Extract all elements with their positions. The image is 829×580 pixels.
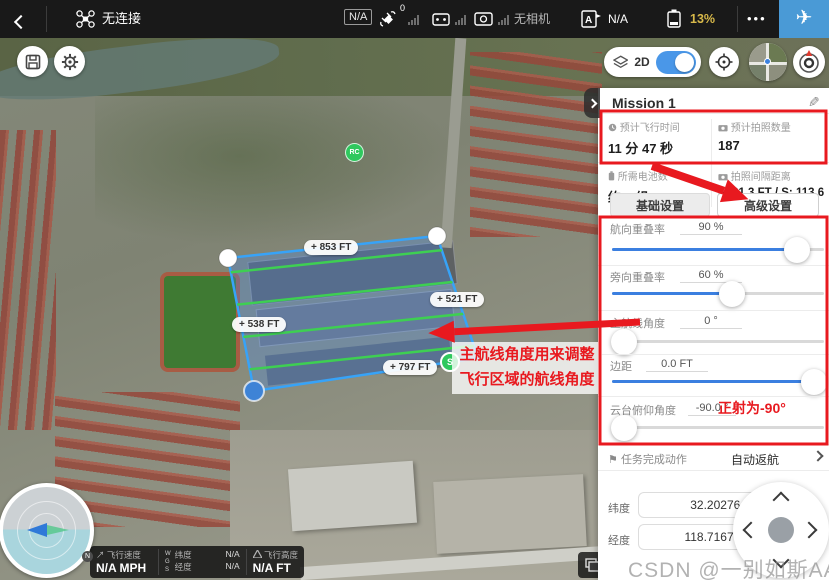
slider-value-margin[interactable]: 0.0 FT [646,358,708,372]
battery-small-icon [608,171,615,181]
edge-length-label: + 521 FT [430,292,484,307]
slider-gimbal-pitch[interactable] [612,426,824,429]
tele-lat-value: N/A [226,549,240,561]
slider-label-course-overlap: 航向重叠率 [610,221,665,237]
edit-mission-button[interactable]: ✎ [808,94,820,111]
map-building [288,461,417,532]
slider-label-margin: 边距 [610,358,632,374]
back-chevron-icon [14,15,28,29]
status-bar: 无连接 N/A 0 无相机 A N/A [0,0,829,38]
mission-settings-button[interactable] [54,46,85,77]
slider-thumb[interactable] [784,237,810,263]
aircraft-heading-icon [21,517,73,543]
save-mission-button[interactable] [17,46,48,77]
remote-controller-icon [432,11,450,26]
finish-action-chevron[interactable] [814,451,822,463]
slider-value-route-angle[interactable]: 0 ° [680,315,742,329]
tab-basic-settings[interactable]: 基础设置 [610,193,710,217]
annotation-route-angle-note: 主航线角度用来调整 飞行区域的航线角度 [452,342,602,394]
slider-value-course-overlap[interactable]: 90 % [680,221,742,235]
slider-label-route-angle: 主航线角度 [610,315,665,331]
edge-length-label: + 853 FT [304,240,358,255]
panel-collapse-handle[interactable] [584,88,600,118]
speed-value: N/A MPH [96,561,152,575]
finish-action-row[interactable]: ⚑ 任务完成动作 [608,451,687,467]
finish-action-label: 任务完成动作 [621,454,687,466]
gps-satellite-icon [379,10,397,28]
camera-status: 无相机 [514,0,550,38]
slider-thumb[interactable] [801,369,827,395]
collapse-chevron-icon [587,98,597,108]
stat-label: 所需电池数 [618,172,668,183]
telemetry-coords: WGS 纬度N/A 经度N/A [159,546,246,578]
map-building [433,474,587,554]
note-line: 飞行区域的航线角度 [452,367,602,392]
slider-label-side-overlap: 旁向重叠率 [610,269,665,285]
nudge-up-button[interactable] [773,492,790,509]
flag-icon: ⚑ [608,454,618,466]
mission-panel: Mission 1 ✎ 预计飞行时间 11 分 47 秒 预计拍照数量 187 … [598,88,829,580]
divider [711,119,712,207]
slider-route-angle[interactable] [612,340,824,343]
clock-icon [608,123,617,132]
edge-length-label: + 797 FT [383,360,437,375]
telemetry-bar: ↗ 飞行速度 N/A MPH WGS 纬度N/A 经度N/A 飞行高度 N/A … [90,546,304,578]
map-roofs-topright [470,52,602,237]
svg-text:A: A [585,15,592,26]
airplane-icon: ✈ [796,7,813,29]
altitude-value: N/A FT [253,561,298,575]
rc-mode-icon: A [581,10,601,28]
takeoff-button[interactable]: ✈ [779,0,829,38]
gps-signal-bars [408,15,419,25]
camera-icon [474,11,493,26]
edge-length-label: + 538 FT [232,317,286,332]
slider-thumb[interactable] [719,281,745,307]
interval-icon [718,173,728,181]
watermark: CSDN @一别如斯AA [628,554,829,580]
latitude-label: 纬度 [608,500,630,516]
divider [46,6,47,32]
tab-advanced-settings[interactable]: 高级设置 [717,193,819,217]
compass-north-badge: N [82,551,93,562]
telemetry-speed: ↗ 飞行速度 N/A MPH [90,546,158,578]
compass-reset-button[interactable] [793,46,825,78]
tele-lon-label: 经度 [175,561,192,573]
map-vegetation [95,96,455,246]
compass-icon [796,49,822,75]
crosshair-icon [715,53,733,71]
rc-signal-bars [455,15,466,25]
stat-value: 11 分 47 秒 [608,138,680,157]
minimap-button[interactable] [749,43,787,81]
wgs-icon: WGS [165,549,171,575]
toggle-knob [675,53,694,72]
telemetry-altitude: 飞行高度 N/A FT [247,546,304,578]
more-menu-button[interactable]: ••• [747,0,767,38]
slider-side-overlap[interactable] [612,292,824,295]
rc-position-marker: RC [345,143,364,162]
nudge-center-button[interactable] [768,517,794,543]
stat-flight-time: 预计飞行时间 11 分 47 秒 [608,119,680,157]
map-2d-toggle[interactable] [656,51,696,74]
app-root: S RC + 853 FT + 521 FT + 538 FT + 797 FT [0,0,829,580]
finish-action-value[interactable]: 自动返航 [731,451,779,468]
longitude-label: 经度 [608,532,630,548]
locate-button[interactable] [709,47,739,77]
tele-lon-value: N/A [226,561,240,573]
stat-label: 预计拍照数量 [731,123,791,134]
map-mode-pill: 2D [604,47,701,77]
stat-label: 预计飞行时间 [620,123,680,134]
nudge-right-button[interactable] [801,522,818,539]
annotation-ortho-note: 正射为-90° [718,398,786,418]
gps-count: 0 [400,0,405,27]
drone-icon [76,10,95,28]
map-sports-field [160,272,240,372]
altitude-label: 飞行高度 [264,550,298,560]
battery-percent: 13% [690,0,715,38]
divider [737,6,738,32]
attitude-compass-widget[interactable] [0,483,94,578]
altitude-icon [253,550,262,558]
tele-lat-label: 纬度 [175,549,192,561]
minimap-position-dot [764,58,771,65]
mission-title: Mission 1 [612,95,676,111]
gear-icon [61,53,79,71]
chevron-right-icon [812,450,823,461]
camera-signal-bars [498,15,509,25]
map-roofs-left [0,130,56,430]
note-line: 主航线角度用来调整 [452,342,602,367]
stat-photo-count: 预计拍照数量 187 [718,119,791,153]
back-button[interactable] [16,14,26,32]
save-icon [25,54,41,70]
slider-thumb[interactable] [611,329,637,355]
map-2d-label: 2D [634,55,649,69]
nudge-left-button[interactable] [743,522,760,539]
rc-mode-value: N/A [608,0,628,38]
slider-thumb[interactable] [611,415,637,441]
photo-icon [718,124,728,132]
battery-icon [666,9,683,29]
connection-status: 无连接 [102,0,141,38]
speed-label: 飞行速度 [107,550,141,560]
stat-label: 拍照间隔距离 [731,172,791,183]
stat-value: 187 [718,138,791,153]
slider-margin[interactable] [612,380,824,383]
map-layers-icon [613,55,628,69]
flight-mode-badge: N/A [344,9,372,25]
speed-arrow-icon: ↗ [96,550,105,560]
